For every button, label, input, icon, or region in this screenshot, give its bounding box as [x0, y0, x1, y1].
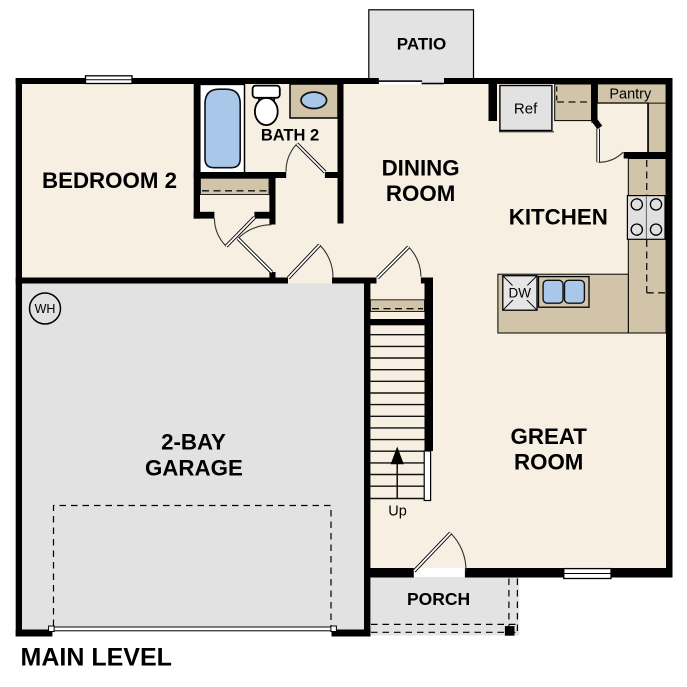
- svg-text:Ref: Ref: [514, 101, 538, 118]
- svg-text:KITCHEN: KITCHEN: [509, 205, 608, 230]
- svg-text:DINING: DINING: [382, 156, 460, 181]
- svg-text:BEDROOM 2: BEDROOM 2: [42, 168, 177, 193]
- svg-text:GARAGE: GARAGE: [145, 456, 243, 481]
- svg-text:Up: Up: [388, 504, 407, 520]
- svg-text:2-BAY: 2-BAY: [161, 430, 226, 455]
- svg-text:BATH 2: BATH 2: [261, 127, 319, 145]
- svg-text:PATIO: PATIO: [397, 34, 446, 53]
- svg-text:GREAT: GREAT: [511, 424, 588, 449]
- svg-text:MAIN LEVEL: MAIN LEVEL: [21, 644, 172, 672]
- svg-text:Pantry: Pantry: [609, 87, 652, 103]
- svg-text:PORCH: PORCH: [407, 589, 470, 609]
- svg-text:ROOM: ROOM: [514, 450, 583, 475]
- svg-text:ROOM: ROOM: [386, 181, 455, 206]
- svg-text:WH: WH: [35, 302, 56, 316]
- svg-text:DW: DW: [509, 286, 532, 301]
